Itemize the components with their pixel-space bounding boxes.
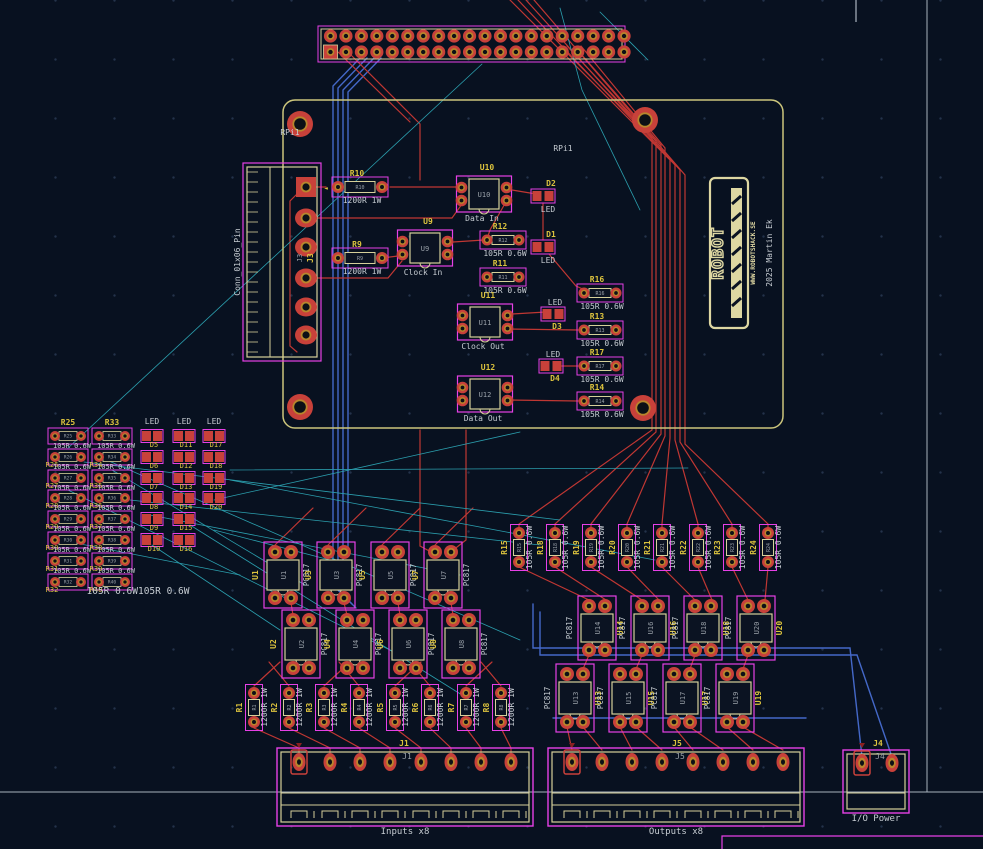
component-U19[interactable]: U19U19PC817 [703, 664, 763, 732]
component-U5[interactable]: U5U5PC817 [358, 542, 418, 608]
fab-ref: R28 [64, 496, 72, 502]
fab-ref: R12 [498, 238, 507, 244]
copper-trace[interactable] [583, 655, 589, 669]
component-R17[interactable]: R17R17105R 0.6W [577, 348, 624, 384]
fab-ref: R3 [322, 704, 328, 710]
silk-ref: U6 [376, 639, 385, 649]
component-R39[interactable]: R39R39105R 0.6W [90, 553, 136, 575]
silk-value: 105R 0.6W [774, 526, 783, 570]
component-R23[interactable]: R23R23105R 0.6W [713, 525, 747, 571]
fab-ref: U2 [298, 640, 306, 648]
silk-ref: D6 [150, 462, 158, 470]
led-pad[interactable] [215, 452, 224, 462]
silk-ref: R11 [493, 259, 508, 268]
silk-value: PC817 [596, 687, 605, 710]
silk-value: 1200R 1W [436, 688, 445, 727]
component-D6[interactable]: D6 [141, 451, 163, 471]
component-D19[interactable]: D19 [203, 472, 225, 492]
silk-value: PC817 [565, 617, 574, 640]
fab-ref: R7 [464, 704, 470, 710]
fab-ref: U15 [625, 692, 633, 705]
component-R25[interactable]: R25R25105R 0.6W [48, 418, 92, 450]
component-U7[interactable]: U7U7PC817 [411, 542, 471, 608]
component-U13[interactable]: U13U13PC817 [543, 664, 603, 732]
component-R38[interactable]: R38R38105R 0.6W [90, 532, 136, 554]
fab-ref: R29 [64, 517, 72, 523]
silk-ref: R12 [493, 222, 508, 231]
mounting-hole[interactable] [287, 394, 313, 420]
component-U11[interactable]: U11U11Clock Out [457, 291, 514, 351]
copper-trace[interactable] [743, 655, 748, 669]
connector-J4[interactable]: J4J4I/O Power [843, 739, 909, 824]
silk-value: 105R 0.6W [525, 526, 534, 570]
led-pad[interactable] [204, 452, 213, 462]
silk-ref: D1 [546, 230, 556, 239]
component-U10[interactable]: U10U10Data In [456, 163, 513, 223]
silk-value: 105R 0.6W [561, 526, 570, 570]
component-R20[interactable]: R20R20105R 0.6W [608, 525, 642, 571]
fab-ref: R36 [108, 496, 116, 502]
component-D12[interactable]: D12 [173, 451, 195, 471]
silk-value: LED [541, 256, 556, 265]
component-U6[interactable]: U6U6PC817 [376, 610, 436, 678]
component-R16[interactable]: R16R16105R 0.6W [577, 275, 624, 311]
hat-hole-label: RPi1 [280, 128, 299, 137]
copper-trace[interactable] [348, 58, 381, 555]
copper-trace[interactable] [452, 430, 466, 551]
component-U8[interactable]: U8U8PC817 [429, 610, 489, 678]
silk-value: LED [546, 350, 561, 359]
copper-trace[interactable] [315, 204, 462, 218]
silk-ref: U3 [304, 570, 313, 580]
component-U14[interactable]: U14U14PC817 [565, 596, 625, 660]
fab-ref: R1 [252, 704, 258, 710]
led-pad[interactable] [174, 535, 183, 545]
component-R3[interactable]: R3R31200R 1W [305, 685, 339, 731]
silk-value: 1200R 1W [343, 196, 382, 205]
copper-trace[interactable] [636, 655, 642, 669]
connector-J5[interactable]: J5J5Outputs x8 [548, 739, 804, 837]
silk-ref: D17 [210, 441, 223, 449]
fab-ref: U8 [458, 640, 466, 648]
copper-trace[interactable] [348, 52, 420, 180]
silk-label: Data In [465, 214, 499, 223]
silk-ref: D13 [180, 483, 193, 491]
fab-ref: R34 [108, 455, 116, 461]
connector-label: Outputs x8 [649, 827, 703, 837]
copper-trace[interactable] [275, 508, 313, 545]
silk-ref: D7 [150, 483, 158, 491]
silk-ref: D3 [552, 322, 562, 331]
silk-ref: R15 [500, 540, 509, 555]
silk-ref: D4 [550, 374, 560, 383]
component-R28[interactable]: R28R28105R 0.6W [46, 490, 92, 512]
ratsnest-line[interactable] [230, 468, 688, 470]
silk-ref: D10 [148, 545, 161, 553]
led-pad[interactable] [204, 473, 213, 483]
component-R4[interactable]: R4R41200R 1W [340, 685, 374, 731]
silk-ref: D2 [546, 179, 556, 188]
led-pad[interactable] [153, 493, 162, 503]
silk-ref: R8 [482, 703, 491, 713]
silk-ref: R13 [590, 312, 605, 321]
silk-ref: R3 [305, 703, 314, 713]
copper-trace[interactable] [506, 329, 578, 330]
silk-value: 1200R 1W [365, 688, 374, 727]
silk-value: PC817 [724, 617, 733, 640]
silk-ref: U5 [358, 570, 367, 580]
led-pad[interactable] [215, 493, 224, 503]
fab-ref: U1 [280, 571, 288, 579]
led-pad[interactable] [185, 493, 194, 503]
fab-ref: R40 [108, 580, 116, 586]
component-D4[interactable]: LEDD4 [539, 350, 563, 383]
led-pad[interactable] [185, 473, 194, 483]
component-R35[interactable]: R35R35105R 0.6W [90, 470, 136, 492]
fab-ref: U3 [333, 571, 341, 579]
component-D11[interactable]: D11 [173, 430, 195, 450]
silk-value: 1200R 1W [472, 688, 481, 727]
silk-value: 1200R 1W [295, 688, 304, 727]
fab-ref: U17 [679, 692, 687, 705]
silk-label: Clock Out [461, 342, 505, 351]
fab-ref: R33 [108, 434, 116, 440]
component-R32[interactable]: R32R32 [46, 574, 88, 594]
led-pad[interactable] [533, 242, 542, 252]
mounting-hole[interactable] [630, 395, 656, 421]
fab-ref: U14 [594, 622, 602, 635]
component-R11[interactable]: R11R11105R 0.6W [480, 259, 527, 295]
silk-ref: D19 [210, 483, 223, 491]
led-pad[interactable] [174, 473, 183, 483]
fab-ref: U12 [479, 391, 492, 399]
fab-ref: R15 [517, 543, 523, 552]
led-pad[interactable] [545, 191, 554, 201]
logo-credit: 2025 Martin Ek [765, 219, 774, 287]
led-pad[interactable] [185, 431, 194, 441]
silk-value: PC817 [650, 687, 659, 710]
fab-ref: R18 [553, 543, 559, 552]
copper-trace[interactable] [269, 662, 289, 686]
component-R8[interactable]: R8R81200R 1W [482, 685, 516, 731]
connector-label: I/O Power [852, 814, 901, 824]
copper-trace[interactable] [254, 662, 280, 686]
silk-ref: R2 [270, 703, 279, 713]
copper-trace[interactable] [420, 430, 433, 553]
silk-ref: D14 [180, 503, 193, 511]
component-R36[interactable]: R36R36105R 0.6W [90, 490, 136, 512]
pin1-arrow-icon: ◄ [324, 185, 328, 192]
silk-value: 105R 0.6W [97, 484, 136, 492]
component-D17[interactable]: D17 [203, 430, 225, 450]
led-pad[interactable] [545, 242, 554, 252]
copper-trace[interactable] [526, 0, 732, 531]
silk-value: 105R 0.6W [580, 339, 624, 348]
fab-ref: R24 [766, 543, 772, 552]
component-U3[interactable]: U3U3PC817 [304, 542, 364, 608]
led-pad[interactable] [185, 535, 194, 545]
silk-ref: D15 [180, 524, 193, 532]
led-pad[interactable] [142, 473, 151, 483]
silk-ref: J5 [672, 739, 682, 748]
copper-trace[interactable] [510, 0, 670, 531]
component-R19[interactable]: R19R19105R 0.6W [572, 525, 606, 571]
component-D16[interactable]: D16 [173, 534, 195, 554]
connector-J1[interactable]: J1J1Inputs x8 [277, 739, 533, 837]
component-U4[interactable]: U4U4PC817 [323, 610, 383, 678]
fab-ref: J4 [875, 752, 885, 761]
copper-trace[interactable] [765, 567, 768, 600]
silk-value: 105R 0.6W [580, 302, 624, 311]
component-R7[interactable]: R7R71200R 1W [447, 685, 481, 731]
silk-ref: D12 [180, 462, 193, 470]
silk-value: 105R 0.6W [633, 526, 642, 570]
led-pad[interactable] [185, 514, 194, 524]
fab-ref: U10 [478, 191, 491, 199]
ratsnest-line[interactable] [214, 432, 520, 500]
copper-trace[interactable] [698, 567, 712, 600]
component-U18[interactable]: U18U18PC817 [671, 596, 731, 660]
component-D7[interactable]: D7 [141, 472, 163, 492]
silk-ref: R4 [340, 703, 349, 713]
silk-ref: R24 [749, 540, 758, 555]
copper-trace[interactable] [382, 508, 420, 545]
fab-ref: U6 [405, 640, 413, 648]
led-pad[interactable] [215, 431, 224, 441]
silk-ref: D18 [210, 462, 223, 470]
hat-silk-label: RPi1 [553, 144, 572, 153]
fab-ref: R35 [108, 476, 116, 482]
copper-trace[interactable] [333, 58, 360, 604]
component-R22[interactable]: R22R22105R 0.6W [679, 525, 713, 571]
component-R5[interactable]: R5R51200R 1W [376, 685, 410, 731]
component-R37[interactable]: R37R37105R 0.6W [90, 511, 136, 533]
led-pad[interactable] [142, 431, 151, 441]
led-pad[interactable] [204, 431, 213, 441]
fab-ref: R8 [499, 704, 505, 710]
component-R10[interactable]: R10R101200R 1W [332, 169, 388, 205]
led-pad[interactable] [153, 535, 162, 545]
pin1-arrow-icon [569, 743, 575, 748]
led-column-header: LED [145, 417, 160, 426]
led-pad[interactable] [541, 361, 550, 371]
led-pad[interactable] [142, 535, 151, 545]
copper-trace[interactable] [627, 567, 659, 600]
component-R27[interactable]: R27R27105R 0.6W [46, 470, 92, 492]
led-pad[interactable] [142, 493, 151, 503]
component-D2[interactable]: D2LED [531, 179, 556, 214]
component-R29[interactable]: R29R29105R 0.6W [46, 511, 92, 533]
fab-ref: R11 [498, 275, 507, 281]
fab-ref: U20 [753, 622, 761, 635]
silk-ref: D16 [180, 545, 193, 553]
component-R12[interactable]: R12R12105R 0.6W [480, 222, 527, 258]
component-R21[interactable]: R21R21105R 0.6W [643, 525, 677, 571]
silk-ref: U2 [269, 639, 278, 649]
fab-ref: U7 [440, 571, 448, 579]
silk-ref: U4 [323, 639, 332, 649]
component-U17[interactable]: U17U17PC817 [650, 664, 710, 732]
silk-value: 1200R 1W [507, 688, 516, 727]
led-pad[interactable] [543, 309, 552, 319]
component-U1[interactable]: U1U1PC817 [251, 542, 311, 608]
component-U16[interactable]: U16U16PC817 [618, 596, 678, 660]
led-pad[interactable] [174, 514, 183, 524]
component-D10[interactable]: D10 [141, 534, 163, 554]
component-D3[interactable]: LEDD3 [541, 298, 565, 331]
copper-trace[interactable] [690, 727, 723, 750]
led-pad[interactable] [153, 473, 162, 483]
fab-ref: R10 [355, 185, 364, 191]
silk-ref: R21 [643, 540, 652, 555]
silk-ref: J4 [873, 739, 883, 748]
silk-value: LED [541, 205, 556, 214]
logo-block[interactable]: ROBOTWWW.ROBOTSHACK.SE2025 Martin Ek [708, 178, 774, 328]
copper-trace[interactable] [690, 655, 695, 669]
fab-ref: U9 [421, 245, 429, 253]
component-U20[interactable]: U20U20PC817 [724, 596, 784, 660]
copper-trace[interactable] [636, 727, 662, 750]
silk-value: 105R 0.6W [483, 249, 527, 258]
silk-ref: R7 [447, 703, 456, 713]
silk-ref: R19 [572, 540, 581, 555]
fab-ref: U11 [479, 319, 492, 327]
silk-ref: R25 [61, 418, 76, 427]
led-pad[interactable] [185, 452, 194, 462]
copper-trace[interactable] [732, 567, 748, 600]
led-pad[interactable] [174, 493, 183, 503]
silk-ref: D5 [150, 441, 158, 449]
fab-ref: U18 [700, 622, 708, 635]
silk-value: PC817 [480, 633, 489, 656]
component-D5[interactable]: D5 [141, 430, 163, 450]
component-R14[interactable]: R14R14105R 0.6W [577, 383, 624, 419]
fab-ref: R25 [64, 434, 72, 440]
fab-ref: R6 [428, 704, 434, 710]
copper-trace[interactable] [620, 727, 632, 750]
silk-ref: U10 [480, 163, 495, 172]
fab-ref: R20 [625, 543, 631, 552]
copper-trace[interactable] [662, 567, 695, 600]
silk-ref: U9 [423, 217, 433, 226]
led-pad[interactable] [153, 431, 162, 441]
component-D15[interactable]: D15 [173, 513, 195, 533]
silk-value: PC817 [462, 564, 471, 587]
silk-ref: R5 [376, 703, 385, 713]
component-R13[interactable]: R13R13105R 0.6W [577, 312, 624, 348]
silk-ref: R17 [590, 348, 605, 357]
component-R30[interactable]: R30R30105R 0.6W [46, 532, 92, 554]
silk-ref: U19 [754, 691, 763, 706]
silk-value: 1200R 1W [260, 688, 269, 727]
component-R31[interactable]: R31R31105R 0.6W [46, 553, 92, 575]
component-R9[interactable]: R9R91200R 1W [332, 240, 388, 276]
fab-ref: U19 [732, 692, 740, 705]
silk-value: 1200R 1W [401, 688, 410, 727]
copper-trace[interactable] [481, 662, 501, 686]
fab-ref: R13 [595, 328, 604, 334]
silk-ref: U11 [481, 291, 496, 300]
component-U12[interactable]: U12U12Data Out [457, 363, 514, 423]
component-R18[interactable]: R18R18105R 0.6W [536, 525, 570, 571]
silk-ref: R6 [411, 703, 420, 713]
sheet-zone-outline[interactable] [722, 836, 983, 849]
fab-ref: R17 [595, 364, 604, 370]
fab-ref: R37 [108, 517, 116, 523]
silk-ref: R32 [46, 586, 59, 594]
connector-name: Conn_01x06_Pin [233, 228, 242, 296]
fab-ref: R39 [108, 559, 116, 565]
silk-value: 105R 0.6W [580, 410, 624, 419]
led-pad[interactable] [553, 361, 562, 371]
copper-trace[interactable] [435, 508, 473, 545]
silk-ref: D9 [150, 524, 158, 532]
led-column-header: LED [177, 417, 192, 426]
component-R2[interactable]: R2R21200R 1W [270, 685, 304, 731]
copper-trace[interactable] [453, 240, 484, 242]
component-R34[interactable]: R34R34105R 0.6W [90, 449, 136, 471]
led-pad[interactable] [204, 493, 213, 503]
silk-value: 105R 0.6W [597, 526, 606, 570]
component-U15[interactable]: U15U15PC817 [596, 664, 656, 732]
silk-value: 105R 0.6W [668, 526, 677, 570]
silk-ref: D11 [180, 441, 193, 449]
copper-trace[interactable] [583, 727, 602, 750]
led-pad[interactable] [215, 473, 224, 483]
led-pad[interactable] [174, 431, 183, 441]
led-pad[interactable] [142, 452, 151, 462]
logo-text: ROBOT [708, 226, 727, 279]
silk-ref: R1 [235, 703, 244, 713]
silk-ref: U7 [411, 570, 420, 580]
led-pad[interactable] [174, 452, 183, 462]
fab-ref: J5 [675, 752, 685, 761]
array-bottom-value: 105R 0.6W105R 0.6W [87, 586, 190, 597]
component-D8[interactable]: D8 [141, 492, 163, 512]
silk-ref: R18 [536, 540, 545, 555]
component-D18[interactable]: D18 [203, 451, 225, 471]
fab-ref: R21 [660, 543, 666, 552]
fab-ref: R14 [595, 399, 604, 405]
silk-ref: R33 [105, 418, 120, 427]
component-R6[interactable]: R6R61200R 1W [411, 685, 445, 731]
component-U9[interactable]: U9U9Clock In [397, 217, 454, 277]
led-pad[interactable] [555, 309, 564, 319]
fab-ref: R26 [64, 455, 72, 461]
connector-J3[interactable]: Conn_01x06_PinJ3J3◄ [233, 163, 328, 361]
silk-ref: R16 [590, 275, 605, 284]
component-R26[interactable]: R26R26105R 0.6W [46, 449, 92, 471]
logo-url: WWW.ROBOTSHACK.SE [750, 221, 757, 285]
copper-trace[interactable] [506, 400, 578, 401]
led-pad[interactable] [153, 452, 162, 462]
led-pad[interactable] [142, 514, 151, 524]
component-R24[interactable]: R24R24105R 0.6W [749, 525, 783, 571]
silk-ref: R10 [350, 169, 365, 178]
copper-trace[interactable] [519, 567, 589, 600]
mounting-hole[interactable] [632, 107, 658, 133]
led-pad[interactable] [533, 191, 542, 201]
silk-ref: D20 [210, 503, 223, 511]
component-U2[interactable]: U2U2PC817 [269, 610, 329, 678]
pcb-canvas[interactable]: RPi1RPi1Conn_01x06_PinJ3J3◄R10R101200R 1… [0, 0, 983, 849]
component-R33[interactable]: R33R33105R 0.6W [92, 418, 136, 450]
silk-ref: U1 [251, 570, 260, 580]
component-R1[interactable]: R1R11200R 1W [235, 685, 269, 731]
silk-label: Clock In [404, 268, 443, 277]
led-pad[interactable] [153, 514, 162, 524]
copper-trace[interactable] [512, 190, 536, 194]
